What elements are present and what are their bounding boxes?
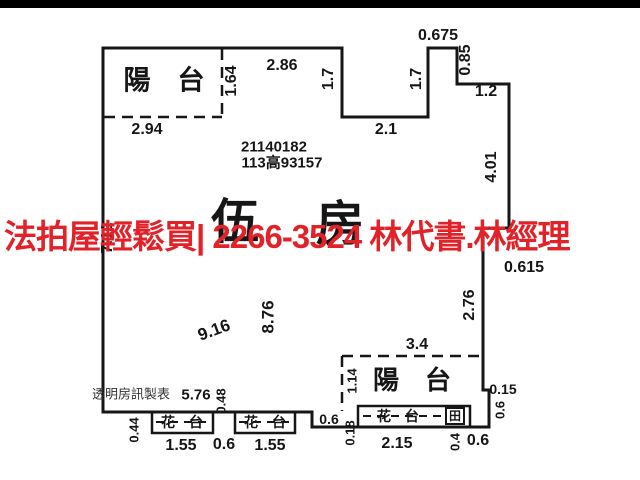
dim-label-0.48: 0.48 [215,388,228,413]
dim-label-0.15: 0.15 [489,382,516,396]
window-symbol: 田 [449,410,461,422]
dim-label-5.76: 5.76 [181,388,210,403]
dim-label-0.675: 0.675 [418,28,458,44]
plan-id-number: 21140182 [241,140,307,155]
dim-label-2.76: 2.76 [462,289,478,320]
dim-label-1.7: 1.7 [409,68,425,90]
watermark: 透明房訊製表 [92,388,170,401]
dim-label-1.2: 1.2 [475,84,497,100]
dim-label-2.94: 2.94 [131,122,162,138]
dim-label-0.18: 0.18 [344,420,357,445]
ad-overlay-text: 法拍屋輕鬆買| 2266-3524 林代書.林經理 [4,219,640,257]
dim-label-4.01: 4.01 [484,151,500,182]
dim-label-2.86: 2.86 [266,58,297,74]
dim-label-2.1: 2.1 [375,122,397,138]
dim-label-1.14: 1.14 [346,368,359,393]
dim-label-1.64: 1.64 [224,65,240,96]
dim-label-8.76: 8.76 [260,300,277,333]
dim-label-2.15: 2.15 [381,436,412,452]
dim-label-0.6: 0.6 [494,401,507,419]
plan-ref-number: 113高93157 [242,156,323,171]
dim-label-3.4: 3.4 [406,337,428,353]
dim-label-0.6: 0.6 [467,433,489,449]
dim-label-0.615: 0.615 [504,260,544,276]
balcony-label-bottom: 陽 台 [373,367,451,393]
dim-label-1.55: 1.55 [165,438,196,454]
dim-label-0.6: 0.6 [213,437,235,453]
dim-label-0.85: 0.85 [458,44,474,75]
dim-label-0.4: 0.4 [449,433,462,451]
dim-label-1.55: 1.55 [254,438,285,454]
balcony-label-top: 陽 台 [124,68,205,95]
planter-label-1: 花 台 [161,415,203,429]
planter-label-2: 花 台 [244,415,286,429]
floorplan-canvas: 陽 台1.642.862.941.72.11.70.6750.851.24.01… [0,0,640,480]
dim-label-0.44: 0.44 [128,417,141,442]
dim-label-1.7: 1.7 [321,68,337,90]
dim-label-9.16: 9.16 [196,316,233,343]
dim-label-0.6: 0.6 [319,412,338,426]
planter-label-3: 花 台 [377,409,419,423]
